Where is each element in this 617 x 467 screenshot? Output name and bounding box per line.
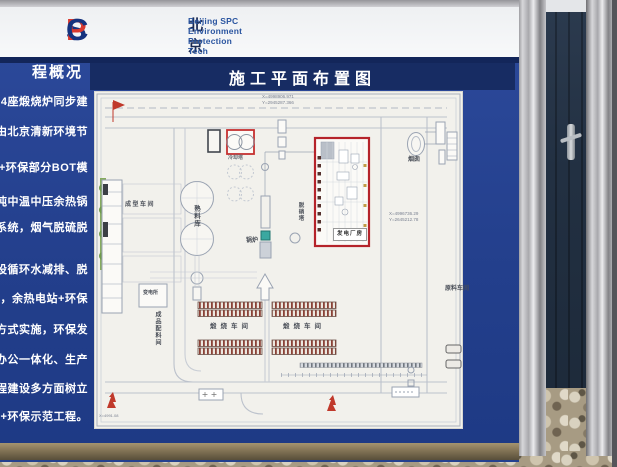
site-plan-linework	[95, 92, 462, 428]
overview-line: C+环保部分BOT模	[0, 159, 88, 175]
logo-letter-c: C	[66, 12, 89, 48]
overview-line: 64座煅烧炉同步建	[0, 93, 88, 109]
overview-line: 投运，余热电站+环保	[0, 290, 88, 306]
site-plan-drawing: X=4998906.971 Y=2945287.366 X=4996736.29…	[95, 92, 462, 428]
container-door-handle	[567, 124, 575, 160]
coordinate-note-top: X=4998906.971 Y=2945287.366	[262, 94, 294, 106]
label-raw-material: 原料车间	[445, 286, 469, 292]
coordinate-y: Y=2645212.78	[389, 217, 418, 223]
label-power-house: 发电厂房	[333, 228, 367, 241]
signboard-frame-bottom	[0, 443, 519, 460]
signboard: SPC 北京清新环境技术股份有限公司 Beijing SPC Environme…	[0, 0, 519, 462]
overview-line: 程、工程建设多方面树立	[0, 380, 88, 396]
cooling-tower-block	[208, 130, 254, 201]
label-calcining-right: 煅烧车间	[272, 324, 336, 331]
overview-heading: 程概况	[32, 61, 83, 82]
plan-title: 施工平面布置图	[229, 65, 376, 89]
label-boiler: 锅炉	[246, 238, 258, 244]
coordinate-note-right: X=4996736.29 Y=2645212.78	[389, 211, 418, 223]
signboard-header: SPC 北京清新环境技术股份有限公司 Beijing SPC Environme…	[0, 7, 519, 57]
signboard-frame-top	[0, 0, 519, 7]
roads	[105, 108, 447, 414]
coordinate-x: X=4998906.971	[262, 94, 294, 100]
coordinate-note-bottom: X=4991.08	[99, 413, 118, 418]
coordinate-y: Y=2945287.366	[262, 100, 294, 106]
photo-right-edge	[612, 0, 617, 467]
project-overview-panel: 程概况 64座煅烧炉同步建 由北京清新环境节 C+环保部分BOT模 吨中温中压余…	[0, 57, 92, 443]
signboard-frame-post-right	[586, 0, 614, 456]
blue-container	[540, 12, 592, 410]
label-chimney: 烟囱	[408, 157, 420, 163]
overview-line: 电+环保示范工程。	[0, 408, 88, 424]
label-forming-workshop: 成型车间	[125, 202, 155, 208]
label-substation: 变电所	[143, 291, 158, 296]
plan-title-bar: 施工平面布置图	[90, 63, 515, 90]
overview-line: 设的方式实施，环保发	[0, 321, 88, 337]
site-photo: SPC 北京清新环境技术股份有限公司 Beijing SPC Environme…	[0, 0, 617, 467]
label-calcining-left: 煅烧车间	[199, 324, 263, 331]
overview-line: 由北京清新环境节	[0, 123, 88, 139]
overview-line: 生产办公一体化、生产	[0, 351, 88, 367]
overview-line: 步建设循环水减排、脱	[0, 261, 88, 277]
north-arrow-icon	[113, 100, 125, 122]
label-denitration-tower: 脱硝塔	[297, 202, 303, 222]
overview-line: 保系统，烟气脱硫脱	[0, 219, 88, 235]
label-clinker-silo: 熟料库	[192, 205, 199, 228]
overview-line: 吨中温中压余热锅	[0, 193, 88, 209]
label-product-batching: 成品配料间	[154, 311, 160, 346]
label-cooling-tower: 冷却塔	[228, 156, 243, 161]
container-panel-ribs	[542, 12, 592, 410]
signboard-frame-post-left	[516, 0, 546, 456]
coordinate-x: X=4996736.29	[389, 211, 418, 217]
